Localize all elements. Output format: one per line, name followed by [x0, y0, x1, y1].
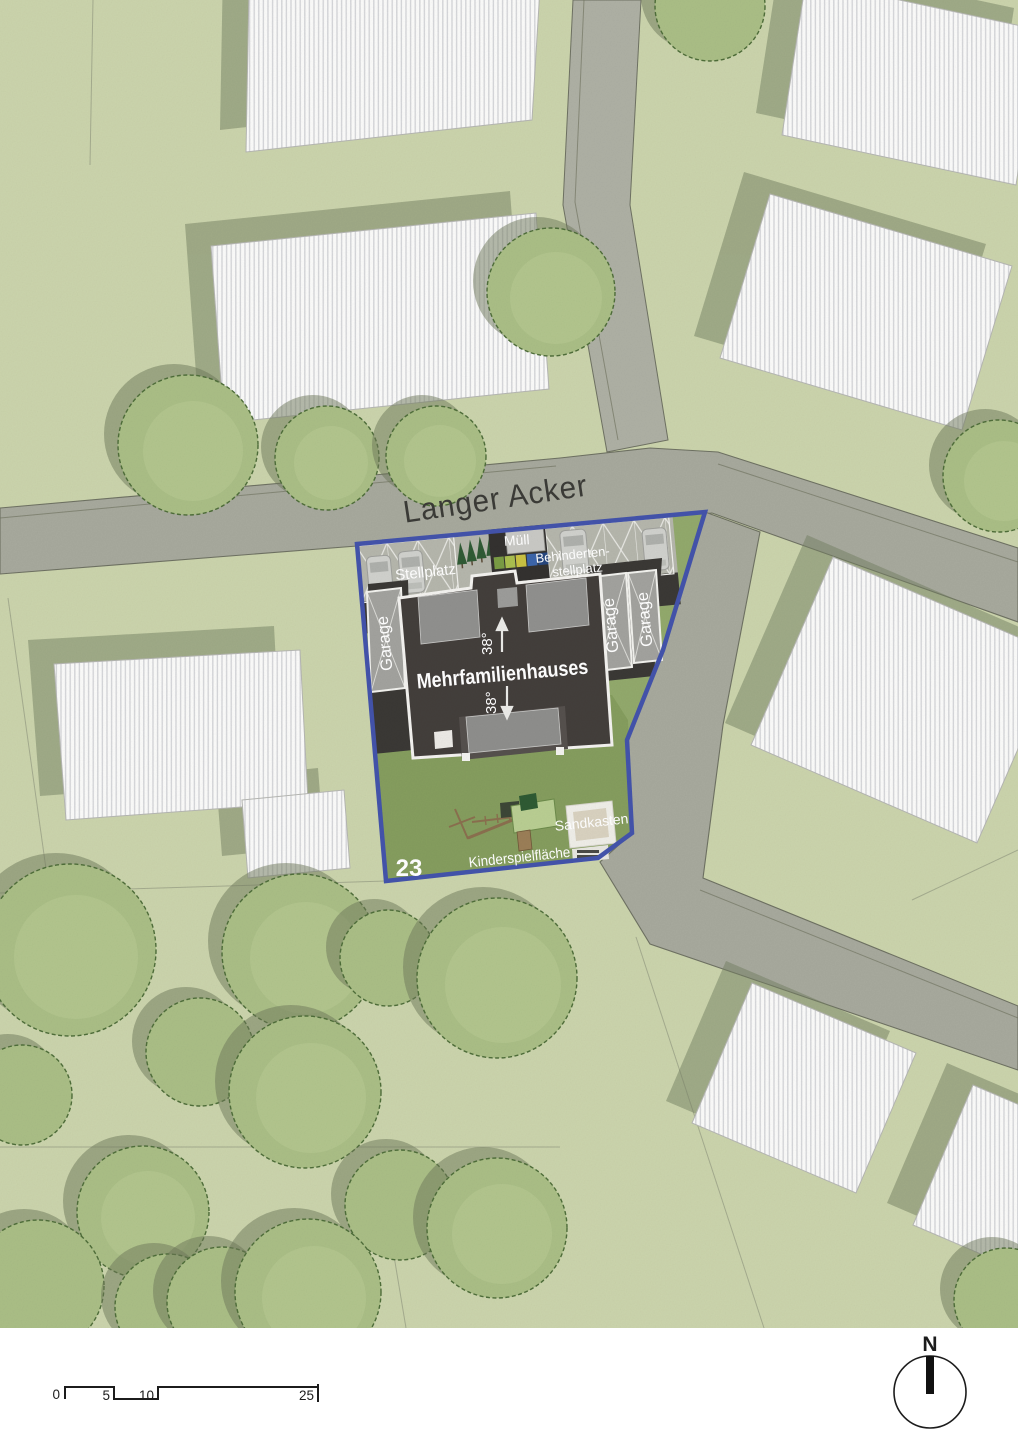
- scale-tick-10: 10: [139, 1388, 154, 1403]
- site-plan: Langer Acker Stellplatz Müll Behinderten…: [0, 0, 1018, 1440]
- compass-needle: [926, 1356, 934, 1394]
- north-label: N: [922, 1333, 937, 1356]
- site-plan-page: Langer Acker Stellplatz Müll Behinderten…: [0, 0, 1018, 1440]
- margin-band: [0, 1328, 1018, 1440]
- scale-tick-5: 5: [102, 1388, 110, 1403]
- texture-overlay: [0, 0, 1018, 1328]
- scale-tick-0: 0: [52, 1387, 60, 1402]
- scale-tick-25: 25: [299, 1388, 314, 1403]
